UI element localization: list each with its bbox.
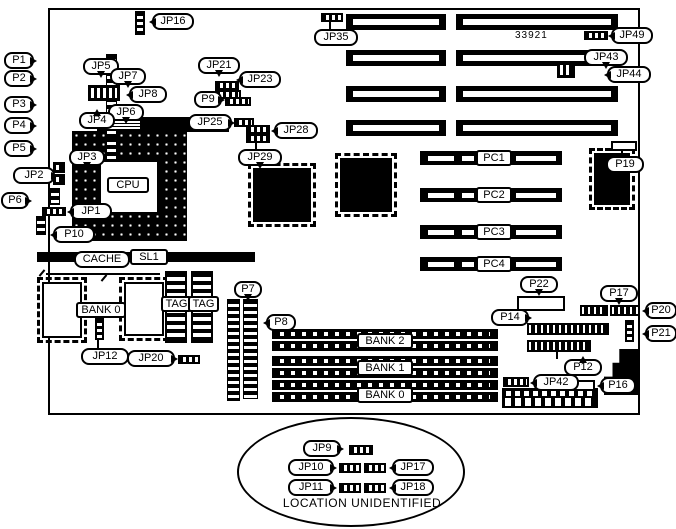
callout-jp49: JP49 xyxy=(611,27,653,44)
callout-jp29: JP29 xyxy=(238,149,282,166)
isa-slot-1-short xyxy=(346,14,446,30)
callout-jp23: JP23 xyxy=(239,71,281,88)
callout-jp17: JP17 xyxy=(392,459,434,476)
pc4-label: PC4 xyxy=(476,256,512,272)
jumper-jp18 xyxy=(364,483,386,493)
jumper-p21 xyxy=(625,320,634,342)
pc1-label: PC1 xyxy=(476,150,512,166)
motherboard-diagram: 33921 JP16 JP35 JP49 JP43 JP44 JP21 JP23… xyxy=(0,0,676,529)
connector-p8 xyxy=(243,299,258,399)
isa-slot-4-short xyxy=(346,120,446,136)
connector-p5 xyxy=(106,137,117,162)
callout-p20: P20 xyxy=(645,302,676,319)
header-jp5-jp7-jp8 xyxy=(88,85,120,101)
connector-p6 xyxy=(50,188,60,205)
jumper-jp16 xyxy=(135,11,145,35)
callout-p19: P19 xyxy=(606,156,644,173)
callout-p4: P4 xyxy=(4,117,34,134)
header-p12 xyxy=(527,340,591,352)
jumper-jp9 xyxy=(349,445,373,455)
isa-slot-4-long xyxy=(456,120,618,136)
part-number: 33921 xyxy=(515,30,548,41)
callout-jp11: JP11 xyxy=(288,479,334,496)
callout-jp3: JP3 xyxy=(69,149,105,166)
callout-p17: P17 xyxy=(600,285,638,302)
jumper-jp11 xyxy=(339,483,361,493)
callout-p22: P22 xyxy=(520,276,558,293)
tag2-label: TAG xyxy=(188,296,219,312)
bank1-label: BANK 1 xyxy=(357,360,413,376)
callout-jp7: JP7 xyxy=(110,68,146,85)
jumper-jp10 xyxy=(339,463,361,473)
header-jp43-jp44 xyxy=(557,62,575,78)
callout-p9: P9 xyxy=(194,91,222,108)
callout-p6: P6 xyxy=(1,192,29,209)
callout-jp1: JP1 xyxy=(70,203,112,220)
pc3-label: PC3 xyxy=(476,224,512,240)
callout-jp4: JP4 xyxy=(79,112,115,129)
jumper-jp28-b xyxy=(246,134,270,143)
connector-p7 xyxy=(227,299,240,401)
jumper-jp35 xyxy=(321,13,343,22)
callout-jp44: JP44 xyxy=(607,66,651,83)
callout-p1: P1 xyxy=(4,52,34,69)
cpu-label: CPU xyxy=(107,177,149,193)
callout-p3: P3 xyxy=(4,96,34,113)
isa-slot-3-long xyxy=(456,86,618,102)
callout-jp28: JP28 xyxy=(274,122,318,139)
cache-bank0-label: BANK 0 xyxy=(76,302,126,318)
callout-p10: P10 xyxy=(53,226,95,243)
connector-p10 xyxy=(36,216,46,235)
callout-jp9: JP9 xyxy=(303,440,341,457)
callout-jp18: JP18 xyxy=(392,479,434,496)
callout-jp21: JP21 xyxy=(198,57,240,74)
connector-p19 xyxy=(611,141,637,151)
callout-p14: P14 xyxy=(491,309,529,326)
callout-p16: P16 xyxy=(600,377,636,394)
callout-p8: P8 xyxy=(266,314,296,331)
callout-jp35: JP35 xyxy=(314,29,358,46)
bank0-label: BANK 0 xyxy=(357,387,413,403)
cache-brace xyxy=(46,273,160,275)
chipset-chip xyxy=(340,158,392,212)
pc2-label: PC2 xyxy=(476,187,512,203)
callout-jp42: JP42 xyxy=(533,374,579,391)
header-p17 xyxy=(580,305,608,316)
chip-jp29 xyxy=(253,168,311,222)
isa-slot-3-short xyxy=(346,86,446,102)
sl1-label: SL1 xyxy=(130,249,168,265)
location-note: LOCATION UNIDENTIFIED xyxy=(282,496,442,510)
cache-chip-right xyxy=(124,282,164,336)
callout-jp43: JP43 xyxy=(584,49,628,66)
callout-jp12: JP12 xyxy=(81,348,129,365)
callout-jp16: JP16 xyxy=(152,13,194,30)
callout-jp2: JP2 xyxy=(13,167,55,184)
callout-jp20: JP20 xyxy=(127,350,175,367)
callout-p2: P2 xyxy=(4,70,34,87)
callout-jp10: JP10 xyxy=(288,459,334,476)
jumper-jp12 xyxy=(95,318,104,340)
bank2-label: BANK 2 xyxy=(357,333,413,349)
callout-p7: P7 xyxy=(234,281,262,298)
isa-slot-1-long xyxy=(456,14,618,30)
callout-p5: P5 xyxy=(4,140,34,157)
callout-jp8: JP8 xyxy=(129,86,167,103)
isa-slot-2-short xyxy=(346,50,446,66)
jumper-jp17 xyxy=(364,463,386,473)
header-p14 xyxy=(527,323,609,335)
power-connector xyxy=(502,388,598,408)
callout-cache: CACHE xyxy=(74,251,130,268)
callout-p21: P21 xyxy=(645,325,676,342)
callout-jp25: JP25 xyxy=(188,114,232,131)
